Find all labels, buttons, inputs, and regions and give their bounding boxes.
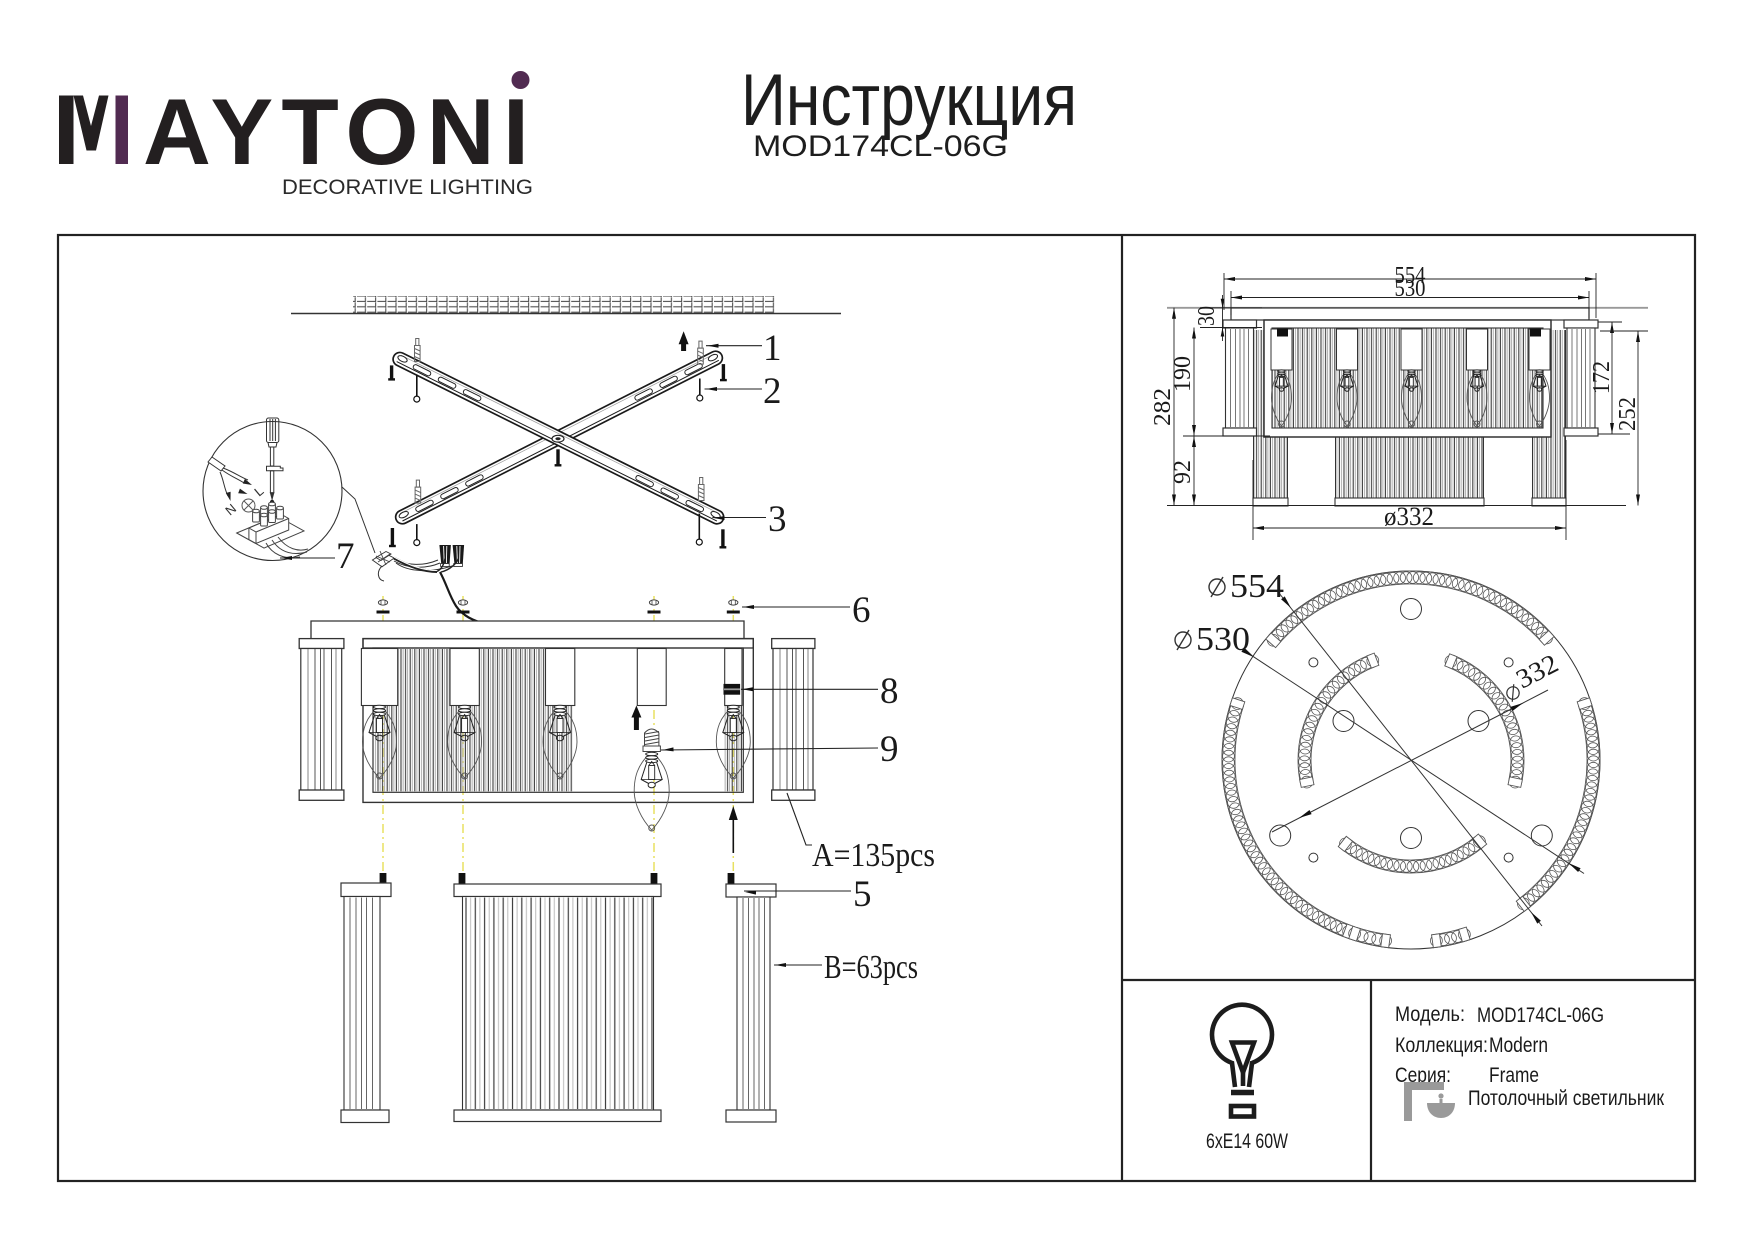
svg-text:8: 8 — [880, 671, 899, 712]
svg-text:A=135pcs: A=135pcs — [812, 837, 935, 874]
svg-text:3: 3 — [768, 499, 787, 540]
svg-text:Модель:: Модель: — [1395, 1003, 1465, 1026]
svg-text:530: 530 — [1196, 621, 1250, 658]
svg-text:Modern: Modern — [1489, 1034, 1548, 1057]
svg-text:2: 2 — [763, 371, 782, 412]
svg-text:9: 9 — [880, 729, 899, 770]
svg-text:B=63pcs: B=63pcs — [824, 949, 918, 986]
svg-text:DECORATIVE LIGHTING: DECORATIVE LIGHTING — [282, 175, 533, 199]
svg-text:30: 30 — [1194, 306, 1220, 326]
svg-text:252: 252 — [1615, 397, 1641, 431]
svg-text:6: 6 — [852, 590, 871, 631]
svg-text:ø332: ø332 — [1384, 502, 1434, 531]
svg-text:530: 530 — [1395, 276, 1426, 302]
svg-text:Инструкция: Инструкция — [741, 60, 1077, 141]
svg-text:6xE14 60W: 6xE14 60W — [1206, 1130, 1288, 1153]
svg-text:MOD174CL-06G: MOD174CL-06G — [1477, 1004, 1604, 1027]
svg-text:Коллекция:: Коллекция: — [1395, 1034, 1488, 1057]
svg-text:554: 554 — [1230, 568, 1284, 605]
svg-text:5: 5 — [853, 874, 872, 915]
svg-text:Потолочный светильник: Потолочный светильник — [1468, 1087, 1665, 1110]
svg-text:172: 172 — [1589, 361, 1615, 394]
svg-text:282: 282 — [1150, 388, 1176, 426]
svg-text:1: 1 — [763, 328, 782, 369]
svg-text:AYTONI: AYTONI — [143, 79, 529, 184]
svg-text:MOD174CL-06G: MOD174CL-06G — [753, 130, 1008, 163]
svg-text:Frame: Frame — [1489, 1064, 1539, 1087]
svg-text:7: 7 — [336, 536, 355, 577]
svg-text:332: 332 — [1511, 648, 1563, 694]
